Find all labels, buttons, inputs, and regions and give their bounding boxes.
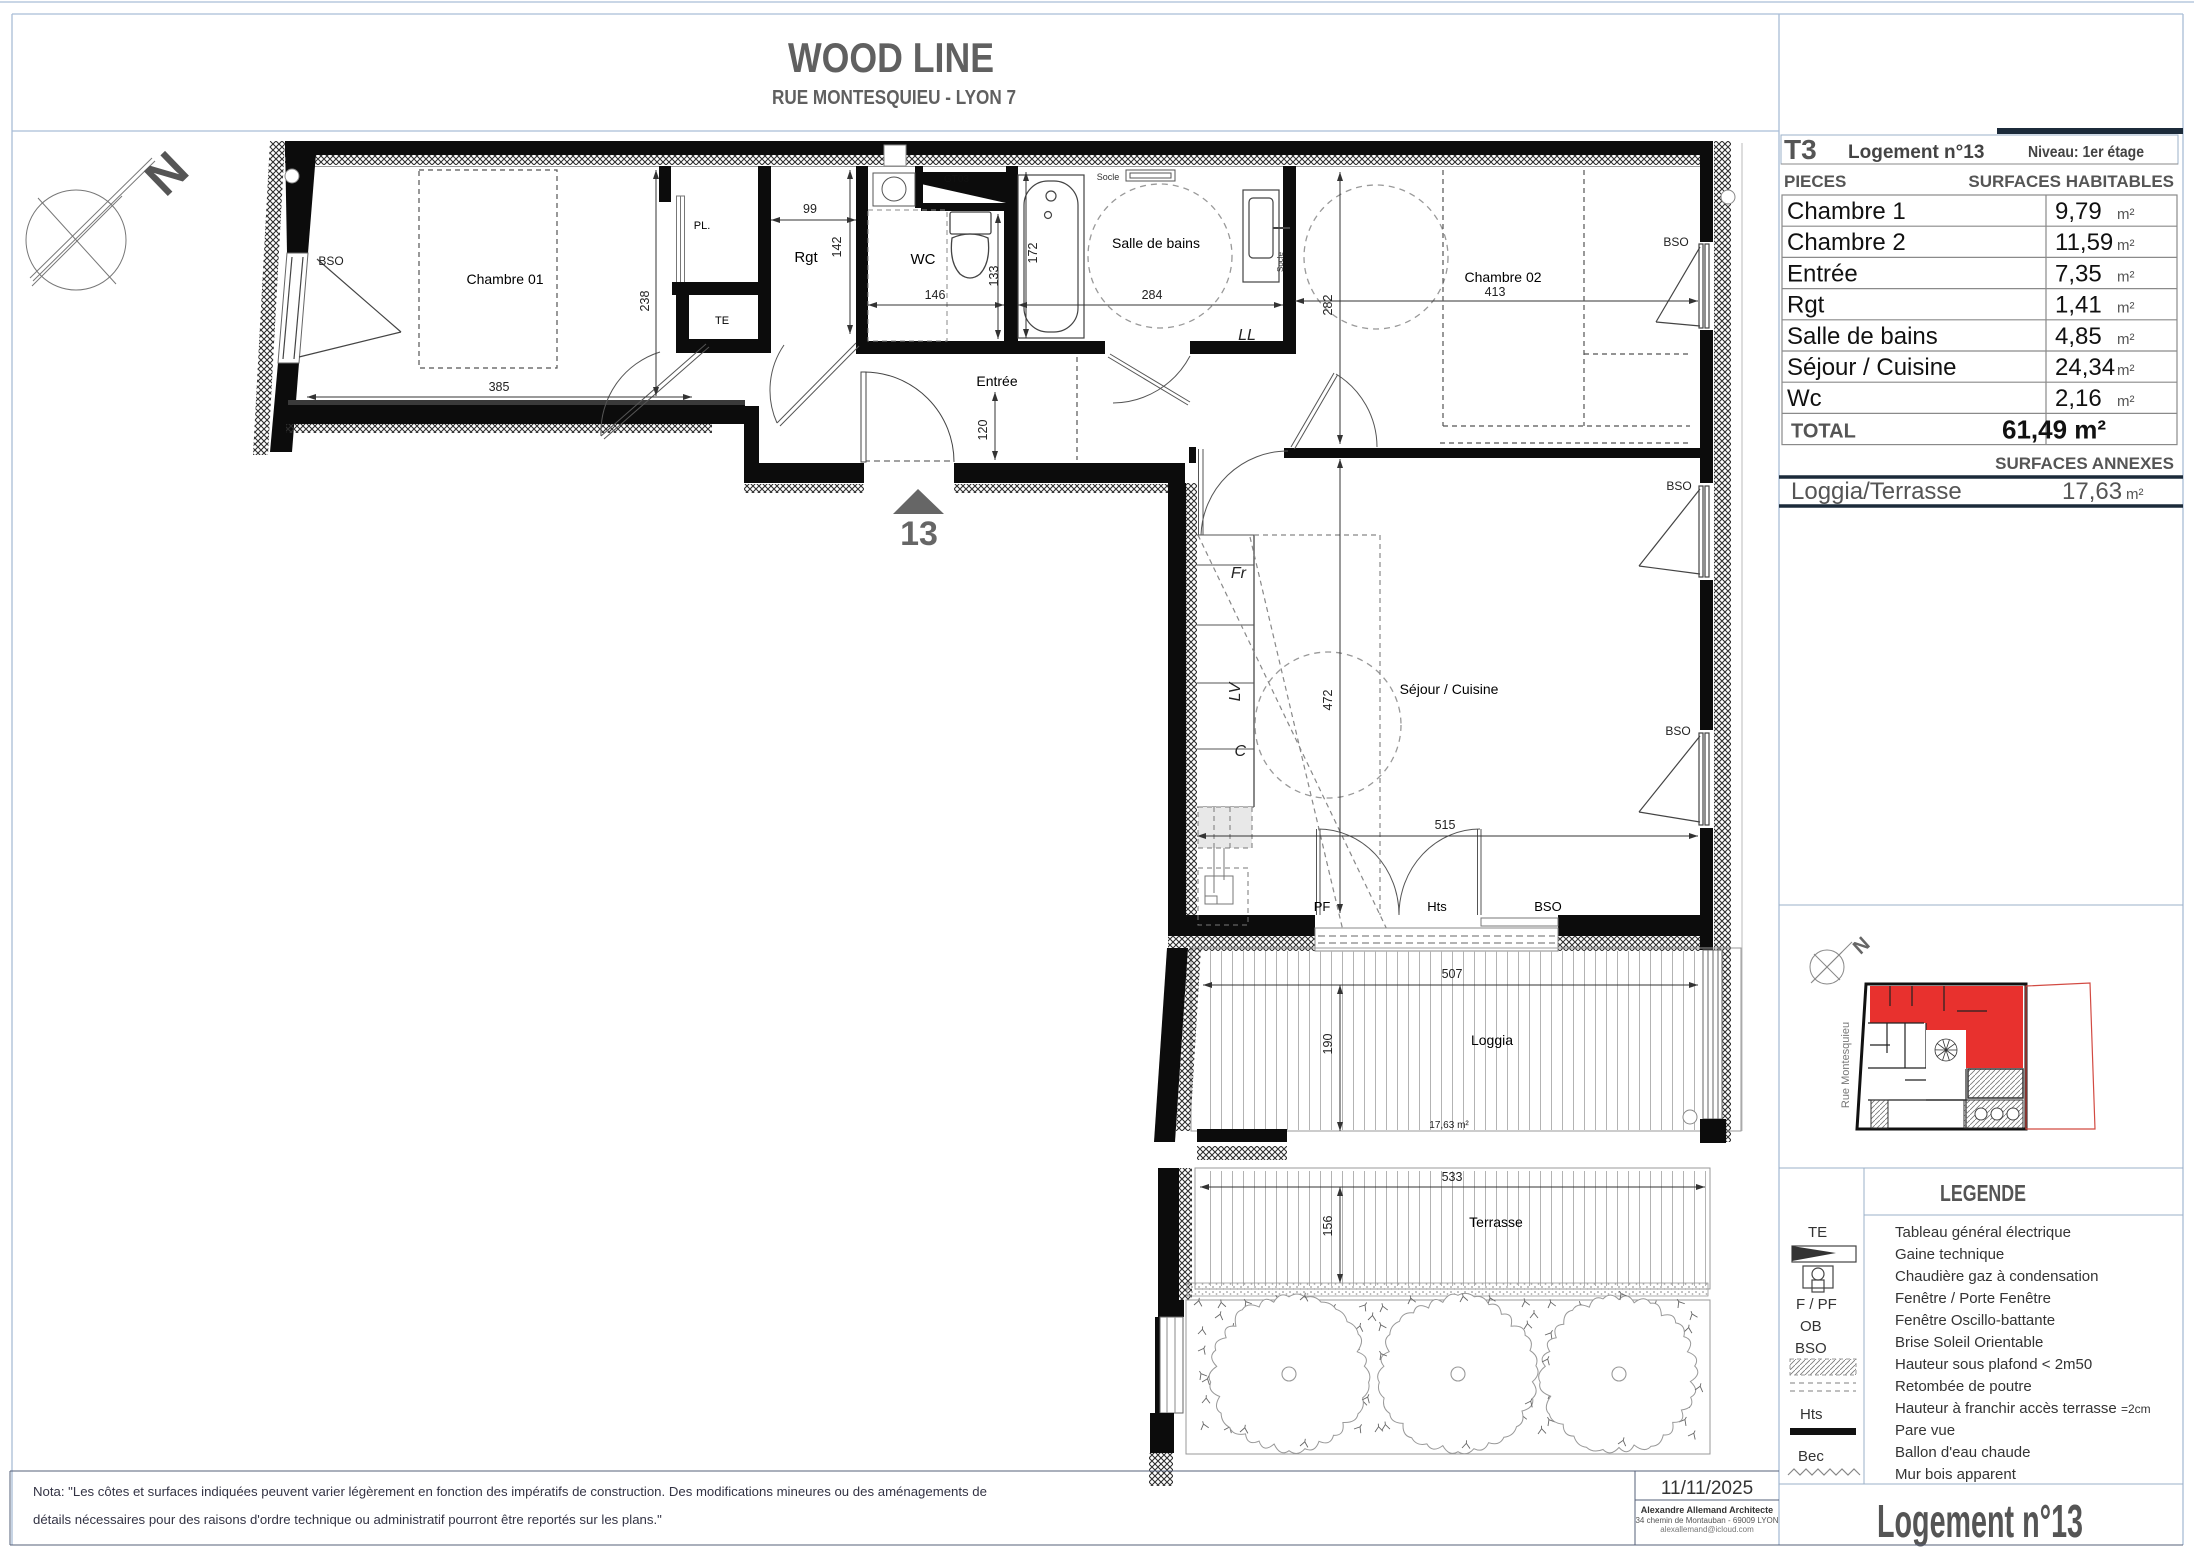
svg-text:m²: m² (2117, 206, 2135, 223)
svg-text:Tableau général électrique: Tableau général électrique (1895, 1224, 2071, 1241)
svg-text:Fenêtre Oscillo-battante: Fenêtre Oscillo-battante (1895, 1312, 2055, 1329)
svg-text:Pare vue: Pare vue (1895, 1422, 1955, 1439)
svg-text:Fr: Fr (1231, 565, 1247, 582)
svg-text:Socle: Socle (1276, 251, 1285, 272)
svg-text:Hts: Hts (1427, 899, 1447, 914)
svg-text:238: 238 (638, 291, 652, 312)
svg-text:413: 413 (1485, 285, 1506, 299)
svg-text:m²: m² (2117, 268, 2135, 285)
svg-text:Nota: "Les côtes et surfaces i: Nota: "Les côtes et surfaces indiquées p… (33, 1484, 987, 1499)
svg-text:Rue Montesquieu: Rue Montesquieu (1840, 1022, 1852, 1108)
svg-text:190: 190 (1321, 1034, 1335, 1055)
svg-text:Retombée de poutre: Retombée de poutre (1895, 1378, 2032, 1395)
svg-text:Chambre 2: Chambre 2 (1787, 229, 1906, 256)
svg-text:Chambre 02: Chambre 02 (1464, 269, 1541, 285)
svg-text:TE: TE (715, 315, 729, 327)
svg-text:Rgt: Rgt (1787, 292, 1825, 319)
svg-text:61,49 m²: 61,49 m² (2002, 414, 2106, 444)
svg-text:WOOD LINE: WOOD LINE (788, 34, 994, 81)
svg-text:OB: OB (1800, 1318, 1822, 1335)
svg-text:GT03: GT03 (944, 174, 969, 185)
svg-text:Mur bois apparent: Mur bois apparent (1895, 1466, 2017, 1483)
svg-text:7,35: 7,35 (2055, 260, 2102, 287)
svg-text:1,41: 1,41 (2055, 292, 2102, 319)
svg-text:Loggia: Loggia (1471, 1032, 1513, 1048)
svg-text:m²: m² (2117, 237, 2135, 254)
svg-text:m²: m² (2117, 300, 2135, 317)
svg-text:Logement n°13: Logement n°13 (1877, 1495, 2083, 1547)
svg-text:LEGENDE: LEGENDE (1940, 1180, 2026, 1206)
svg-text:SURFACES HABITABLES: SURFACES HABITABLES (1968, 172, 2174, 191)
svg-text:4,85: 4,85 (2055, 323, 2102, 350)
svg-text:LV: LV (1227, 681, 1244, 701)
svg-text:SURFACES ANNEXES: SURFACES ANNEXES (1995, 454, 2174, 473)
svg-text:m²: m² (2117, 393, 2135, 410)
svg-text:BSO: BSO (1666, 479, 1691, 493)
svg-text:RUE MONTESQUIEU - LYON 7: RUE MONTESQUIEU - LYON 7 (772, 87, 1016, 109)
svg-text:m²: m² (2117, 362, 2135, 379)
svg-text:BSO: BSO (318, 254, 343, 268)
svg-text:13: 13 (900, 515, 938, 553)
svg-text:142: 142 (830, 237, 844, 258)
svg-text:284: 284 (1142, 288, 1163, 302)
svg-text:9,79: 9,79 (2055, 198, 2102, 225)
svg-text:BSO: BSO (1663, 235, 1688, 249)
svg-text:WC: WC (911, 251, 936, 268)
svg-text:Entrée: Entrée (976, 373, 1017, 389)
svg-text:Gaine technique: Gaine technique (1895, 1246, 2004, 1263)
svg-text:Logement n°13: Logement n°13 (1848, 142, 1984, 163)
svg-text:T3: T3 (1784, 134, 1817, 165)
svg-text:PL.: PL. (694, 220, 711, 232)
svg-text:m²: m² (2117, 331, 2135, 348)
svg-text:Salle de bains: Salle de bains (1112, 235, 1200, 251)
svg-text:Niveau: 1er étage: Niveau: 1er étage (2028, 144, 2144, 161)
svg-text:C: C (1234, 743, 1246, 760)
svg-text:Brise Soleil Orientable: Brise Soleil Orientable (1895, 1334, 2043, 1351)
svg-text:156: 156 (1321, 1216, 1335, 1237)
svg-text:515: 515 (1435, 818, 1456, 832)
svg-text:m²: m² (2126, 486, 2144, 503)
svg-text:120: 120 (976, 420, 990, 441)
svg-text:Hauteur sous plafond < 2m50: Hauteur sous plafond < 2m50 (1895, 1356, 2092, 1373)
svg-text:Séjour / Cuisine: Séjour / Cuisine (1787, 354, 1956, 381)
svg-text:11,59: 11,59 (2055, 229, 2113, 256)
svg-text:Rgt: Rgt (794, 249, 818, 266)
svg-text:24,34: 24,34 (2055, 354, 2115, 381)
svg-text:BSO: BSO (1795, 1340, 1827, 1357)
svg-text:Socle: Socle (1097, 172, 1120, 182)
svg-text:Fenêtre / Porte Fenêtre: Fenêtre / Porte Fenêtre (1895, 1290, 2051, 1307)
svg-text:Entrée: Entrée (1787, 260, 1858, 287)
svg-text:Chaudière gaz à condensation: Chaudière gaz à condensation (1895, 1268, 2098, 1285)
svg-text:BSO: BSO (1534, 899, 1561, 914)
svg-text:2,16: 2,16 (2055, 385, 2102, 412)
svg-text:LL: LL (1238, 327, 1256, 344)
svg-text:146: 146 (925, 288, 946, 302)
svg-text:Séjour / Cuisine: Séjour / Cuisine (1400, 681, 1499, 697)
svg-text:Wc: Wc (1787, 385, 1822, 412)
svg-text:Ballon d'eau chaude: Ballon d'eau chaude (1895, 1444, 2030, 1461)
svg-text:133: 133 (987, 266, 1001, 287)
svg-text:Salle de bains: Salle de bains (1787, 323, 1938, 350)
svg-text:533: 533 (1442, 1170, 1463, 1184)
svg-text:détails nécessaires pour des r: détails nécessaires pour des raisons d'o… (33, 1512, 662, 1527)
svg-text:Hauteur à franchir accès terra: Hauteur à franchir accès terrasse =2cm (1895, 1400, 2151, 1417)
svg-text:Loggia/Terrasse: Loggia/Terrasse (1791, 478, 1962, 505)
svg-text:282: 282 (1321, 295, 1335, 316)
svg-text:PF: PF (1314, 899, 1331, 914)
svg-text:Bec: Bec (1798, 1448, 1824, 1465)
svg-text:172: 172 (1026, 243, 1040, 264)
svg-text:472: 472 (1321, 690, 1335, 711)
svg-text:alexallemand@icloud.com: alexallemand@icloud.com (1660, 1525, 1754, 1534)
svg-text:Hts: Hts (1800, 1406, 1823, 1423)
svg-text:34 chemin de Montauban - 69009: 34 chemin de Montauban - 69009 LYON (1635, 1516, 1778, 1525)
svg-text:385: 385 (489, 380, 510, 394)
svg-text:17,63: 17,63 (2062, 478, 2122, 505)
svg-text:99: 99 (803, 202, 817, 216)
svg-text:TOTAL: TOTAL (1791, 420, 1856, 442)
svg-text:507: 507 (1442, 967, 1463, 981)
svg-text:Alexandre Allemand Architecte: Alexandre Allemand Architecte (1641, 1505, 1773, 1515)
svg-text:Chambre 01: Chambre 01 (466, 271, 543, 287)
svg-text:17,63 m²: 17,63 m² (1429, 1120, 1469, 1131)
svg-text:Chambre 1: Chambre 1 (1787, 198, 1906, 225)
svg-text:Terrasse: Terrasse (1469, 1214, 1523, 1230)
svg-text:BSO: BSO (1665, 724, 1690, 738)
svg-text:TE: TE (1808, 1224, 1827, 1241)
svg-text:PIECES: PIECES (1784, 172, 1846, 191)
svg-text:11/11/2025: 11/11/2025 (1661, 1478, 1753, 1499)
svg-text:F / PF: F / PF (1796, 1296, 1837, 1313)
